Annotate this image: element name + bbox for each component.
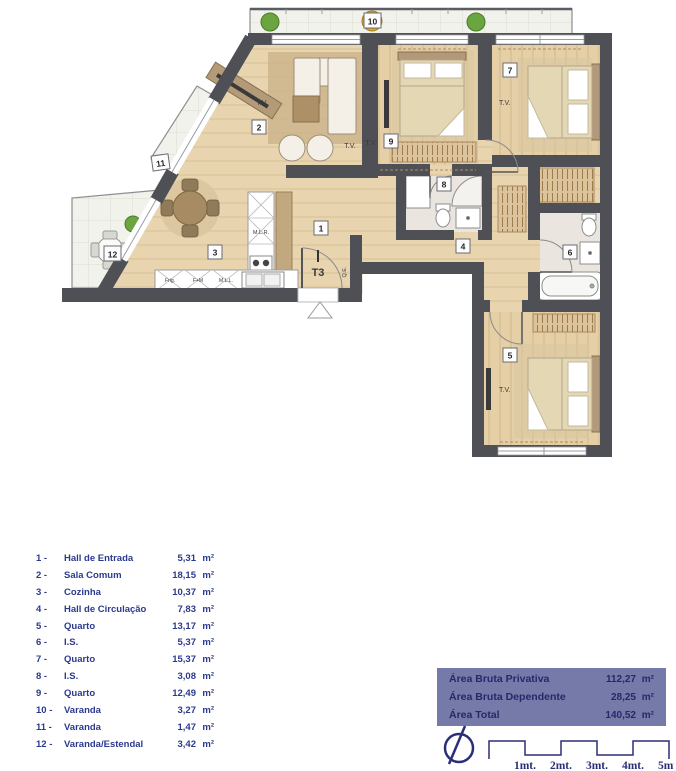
wardrobe — [534, 168, 594, 202]
summary-row: Área Total140,52m² — [437, 709, 666, 721]
legend-row: 5 -Quarto13,17m² — [36, 621, 214, 638]
tall-cabinet — [276, 192, 292, 272]
wardrobe — [498, 186, 526, 232]
summary-row: Área Bruta Privativa112,27m² — [437, 673, 666, 685]
tv-label: T.V. — [365, 140, 376, 147]
pillow — [435, 63, 462, 78]
unit-type-label: T3 — [312, 267, 325, 279]
electrical-panel-label: Q.E. — [342, 266, 348, 277]
pillow — [568, 104, 588, 134]
plant-icon — [261, 13, 279, 31]
tv-label: T.V. — [256, 100, 267, 107]
headboard — [592, 64, 600, 140]
coffee-table — [293, 96, 319, 122]
legend-row: 9 -Quarto12,49m² — [36, 688, 214, 705]
room-tag-10: 10 — [368, 17, 378, 27]
room-tag-4: 4 — [461, 242, 466, 252]
scale-label: 2mt. — [550, 760, 572, 771]
tv-label: T.V. — [499, 100, 510, 107]
fridge-label: Frig. — [165, 278, 175, 284]
washing-machine-label: M.L.R. — [253, 230, 270, 236]
room-legend: 1 -Hall de Entrada5,31m² 2 -Sala Comum18… — [36, 553, 214, 756]
room-tag-3: 3 — [213, 248, 218, 258]
legend-row: 7 -Quarto15,37m² — [36, 654, 214, 671]
room-tag-5: 5 — [508, 351, 513, 361]
legend-row: 11 -Varanda1,47m² — [36, 722, 214, 739]
room-tag-2: 2 — [257, 123, 262, 133]
scale-label: 1mt. — [514, 760, 536, 771]
headboard — [592, 356, 600, 432]
legend-row: 12 -Varanda/Estendal3,42m² — [36, 739, 214, 756]
scale-label: 3mt. — [586, 760, 608, 771]
room-tag-12: 12 — [108, 250, 118, 260]
headboard — [398, 52, 466, 60]
room-tag-11: 11 — [156, 158, 167, 169]
floorplan-page: T.V. T.V. T.V. T.V. T.V. T3 Q.E. M.L.R. … — [0, 0, 676, 771]
balcony-top — [250, 9, 572, 35]
wardrobe — [392, 142, 476, 162]
room-tag-1: 1 — [319, 224, 324, 234]
entrance-marker — [308, 302, 332, 318]
room-tag-6: 6 — [568, 248, 573, 258]
legend-row: 6 -I.S.5,37m² — [36, 637, 214, 654]
summary-row: Área Bruta Dependente28,25m² — [437, 691, 666, 703]
legend-row: 1 -Hall de Entrada5,31m² — [36, 553, 214, 570]
tv-icon — [486, 368, 491, 410]
legend-row: 8 -I.S.3,08m² — [36, 671, 214, 688]
wardrobe — [533, 314, 595, 332]
pillow — [568, 70, 588, 100]
legend-row: 2 -Sala Comum18,15m² — [36, 570, 214, 587]
legend-row: 4 -Hall de Circulação7,83m² — [36, 604, 214, 621]
room-tag-8: 8 — [442, 180, 447, 190]
scale-bar: 1mt. 2mt. 3mt. 4mt. 5mt. — [486, 729, 674, 771]
toilet — [582, 218, 596, 236]
legend-row: 3 -Cozinha10,37m² — [36, 587, 214, 604]
scale-label: 5mt. — [658, 760, 674, 771]
tv-icon — [384, 80, 389, 128]
pillow — [404, 63, 431, 78]
shower-tray — [406, 176, 430, 208]
area-summary-table: Área Bruta Privativa112,27m² Área Bruta … — [437, 668, 666, 726]
pillow — [568, 396, 588, 426]
north-arrow-icon — [438, 724, 480, 768]
tv-label: T.V. — [499, 387, 510, 394]
oven-label: F+M — [193, 278, 203, 284]
pouf — [279, 135, 305, 161]
dining-table — [173, 191, 207, 225]
pouf — [307, 135, 333, 161]
toilet — [436, 209, 450, 227]
scale-label: 4mt. — [622, 760, 644, 771]
plant-icon — [467, 13, 485, 31]
pillow — [568, 362, 588, 392]
sofa — [328, 58, 356, 134]
room-tag-9: 9 — [389, 137, 394, 147]
dishwasher-label: M.L.L. — [219, 278, 233, 284]
legend-row: 10 -Varanda3,27m² — [36, 705, 214, 722]
tv-label: T.V. — [344, 143, 355, 150]
floor-plan: T.V. T.V. T.V. T.V. T.V. T3 Q.E. M.L.R. … — [0, 0, 676, 470]
room-tag-7: 7 — [508, 66, 513, 76]
